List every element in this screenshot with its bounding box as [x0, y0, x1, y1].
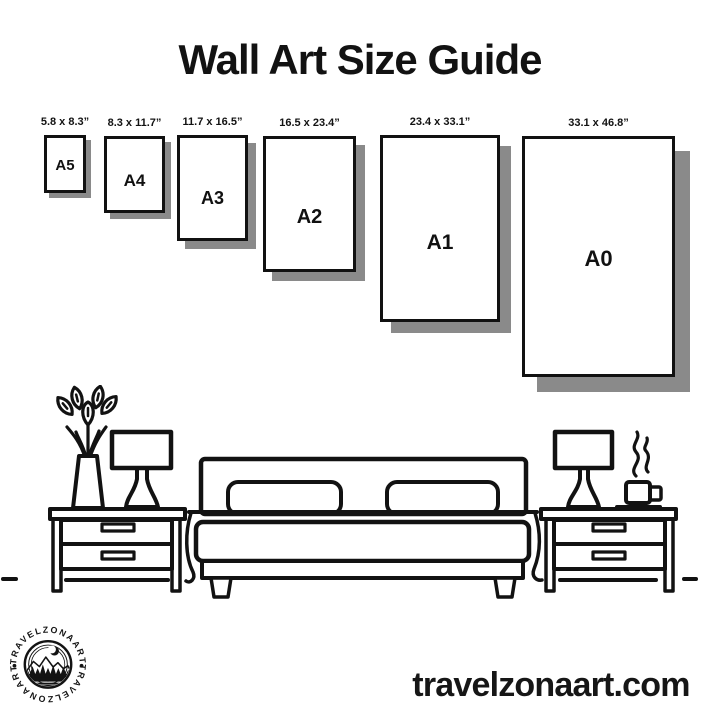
poster-sheet: A1 — [380, 135, 500, 322]
poster-sheet: A2 — [263, 136, 356, 272]
website-text: travelzonaart.com — [398, 666, 704, 705]
poster-sheet: A3 — [177, 135, 248, 241]
size-letter: A0 — [584, 242, 612, 272]
size-dims-label: 16.5 x 23.4” — [279, 117, 340, 129]
size-frame-a1: 23.4 x 33.1” A1 — [380, 135, 500, 322]
poster-sheet: A5 — [44, 135, 86, 193]
badge-dot-right — [80, 664, 84, 668]
size-dims-label: 5.8 x 8.3” — [41, 116, 89, 128]
size-letter: A3 — [201, 168, 224, 209]
size-frame-a0: 33.1 x 46.8” A0 — [522, 136, 675, 377]
coffee-cup-icon — [617, 432, 661, 507]
size-dims-label: 11.7 x 16.5” — [183, 116, 243, 128]
wall-art-size-guide-page: { "title": "Wall Art Size Guide", "sizes… — [0, 0, 720, 720]
table-lamp-left-icon — [112, 432, 171, 507]
page-title: Wall Art Size Guide — [0, 36, 720, 84]
poster-sheet: A0 — [522, 136, 675, 377]
bedroom-illustration — [0, 385, 720, 620]
size-letter: A4 — [124, 159, 146, 191]
size-frame-a2: 16.5 x 23.4” A2 — [263, 136, 356, 272]
size-dims-label: 23.4 x 33.1” — [410, 116, 471, 128]
poster-sheet: A4 — [104, 136, 165, 213]
size-frame-a5: 5.8 x 8.3” A5 — [44, 135, 86, 193]
badge-dot-left — [13, 664, 17, 668]
size-dims-label: 33.1 x 46.8” — [568, 117, 629, 129]
size-frame-a4: 8.3 x 11.7” A4 — [104, 136, 165, 213]
size-letter: A5 — [55, 155, 74, 174]
brand-logo-badge: TRAVELZONAART TRAVELZONAART — [5, 624, 91, 710]
size-dims-label: 8.3 x 11.7” — [108, 117, 162, 129]
table-lamp-right-icon — [555, 432, 612, 507]
bed-illustration — [186, 459, 542, 597]
size-frame-a3: 11.7 x 16.5” A3 — [177, 135, 248, 241]
size-letter: A2 — [297, 180, 323, 229]
size-letter: A1 — [427, 203, 454, 255]
water-lines — [26, 684, 71, 686]
nightstand-left-icon — [50, 509, 185, 591]
nightstand-right-icon — [541, 509, 676, 591]
